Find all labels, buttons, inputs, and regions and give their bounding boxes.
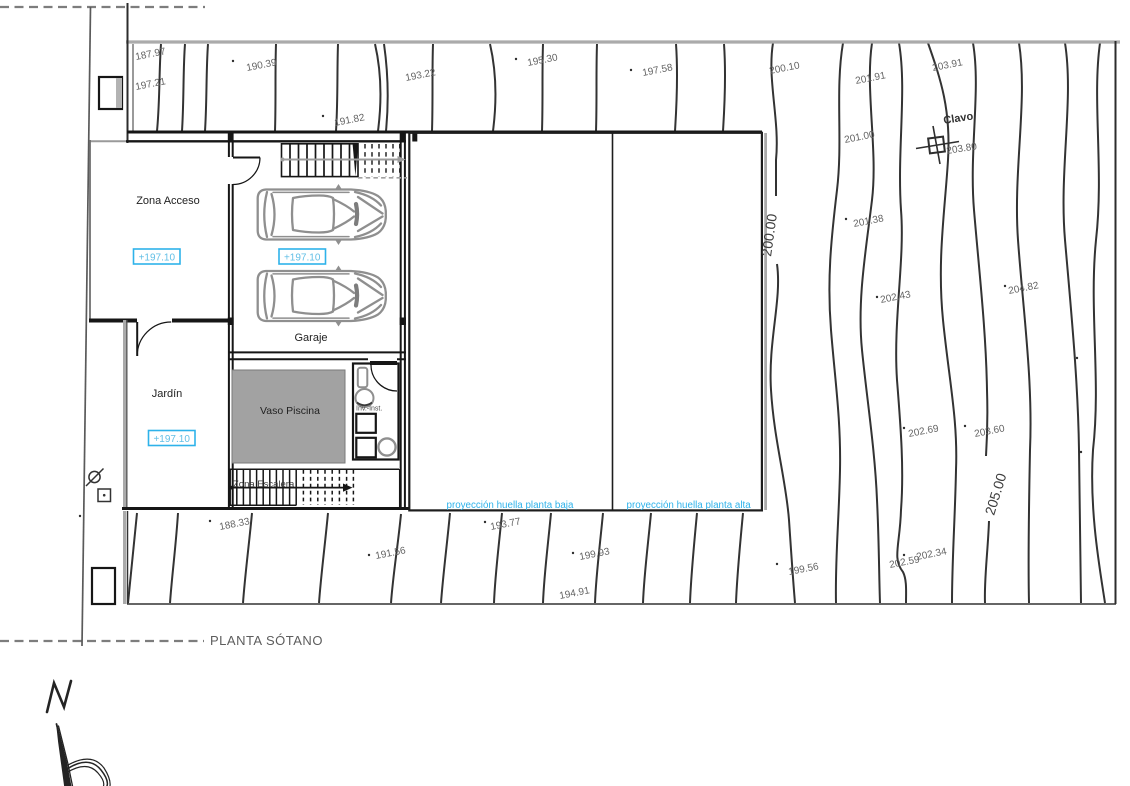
svg-text:Zona Escalera: Zona Escalera: [233, 479, 295, 490]
svg-text:+197.10: +197.10: [139, 253, 176, 264]
svg-text:Jardín: Jardín: [152, 388, 183, 400]
svg-text:PLANTA SÓTANO: PLANTA SÓTANO: [210, 633, 323, 648]
svg-text:Inv.-Inst.: Inv.-Inst.: [356, 406, 382, 413]
svg-text:Zona Acceso: Zona Acceso: [136, 195, 200, 207]
svg-text:Vaso Piscina: Vaso Piscina: [260, 405, 320, 417]
svg-text:Garaje: Garaje: [294, 332, 327, 344]
svg-text:+197.10: +197.10: [153, 434, 190, 445]
svg-text:proyección huella planta alta: proyección huella planta alta: [627, 500, 752, 511]
svg-text:+197.10: +197.10: [284, 253, 321, 264]
svg-text:proyección huella planta baja: proyección huella planta baja: [447, 500, 574, 511]
